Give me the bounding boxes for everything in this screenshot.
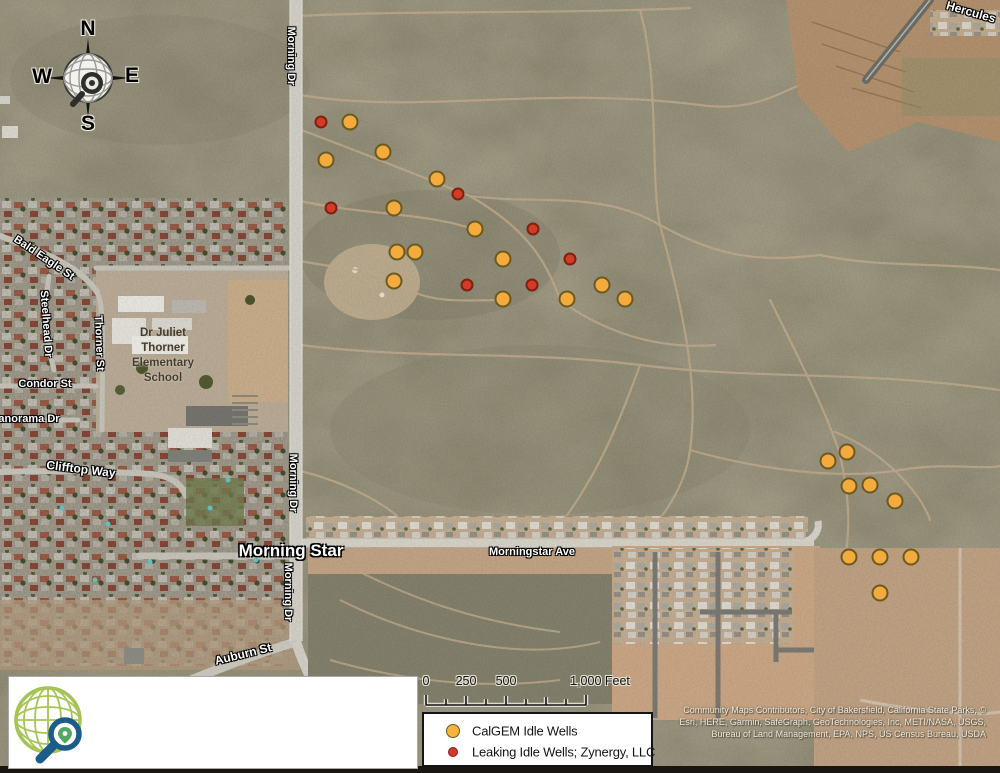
attribution-line: Community Maps Contributors, City of Bak… — [679, 704, 986, 716]
legend-item-leaking-wells: Leaking Idle Wells; Zynergy, LLC — [424, 741, 651, 763]
well-marker-idle — [872, 585, 889, 602]
well-marker-idle — [318, 152, 335, 169]
well-marker-idle — [903, 549, 920, 566]
well-marker-idle — [839, 444, 856, 461]
well-marker-idle — [617, 291, 634, 308]
legend-label: Leaking Idle Wells; Zynergy, LLC — [472, 745, 655, 760]
well-marker-idle — [386, 273, 403, 290]
well-marker-idle — [467, 221, 484, 238]
well-marker-idle — [386, 200, 403, 217]
well-marker-leaking — [452, 188, 465, 201]
legend-label: CalGEM Idle Wells — [472, 724, 577, 739]
well-marker-idle — [495, 251, 512, 268]
well-marker-idle — [862, 477, 879, 494]
well-marker-idle — [407, 244, 424, 261]
well-marker-idle — [375, 144, 392, 161]
well-marker-leaking — [564, 253, 577, 266]
attribution-line: Bureau of Land Management, EPA, NPS, US … — [679, 728, 986, 740]
scale-label-250: 250 — [456, 674, 477, 688]
scale-label-0: 0 — [423, 674, 430, 688]
scale-bar-graphic — [420, 691, 592, 707]
idle-well-symbol-icon — [446, 724, 460, 738]
well-marker-idle — [429, 171, 446, 188]
well-marker-leaking — [526, 279, 539, 292]
well-marker-leaking — [325, 202, 338, 215]
map-canvas: Morning DrHerculesBald Eagle StSteelhead… — [0, 0, 1000, 773]
well-marker-idle — [594, 277, 611, 294]
attribution-line: Esri, HERE, Garmin, SafeGraph, GeoTechno… — [679, 716, 986, 728]
scale-label-500: 500 — [496, 674, 517, 688]
well-marker-idle — [495, 291, 512, 308]
well-marker-idle — [389, 244, 406, 261]
leaking-well-symbol-icon — [448, 747, 458, 757]
well-marker-idle — [887, 493, 904, 510]
globe-magnifier-icon — [10, 682, 96, 768]
scale-bar: 0 250 500 1,000 Feet — [420, 674, 650, 710]
map-attribution: Community Maps Contributors, City of Bak… — [679, 704, 986, 740]
well-marker-idle — [820, 453, 837, 470]
well-markers — [0, 0, 1000, 773]
well-marker-leaking — [527, 223, 540, 236]
legend-item-idle-wells: CalGEM Idle Wells — [424, 720, 651, 742]
well-marker-idle — [872, 549, 889, 566]
well-marker-idle — [342, 114, 359, 131]
legend: CalGEM Idle Wells Leaking Idle Wells; Zy… — [422, 712, 653, 767]
well-marker-leaking — [315, 116, 328, 129]
well-marker-idle — [841, 549, 858, 566]
well-marker-idle — [841, 478, 858, 495]
well-marker-idle — [559, 291, 576, 308]
scale-label-1000: 1,000 Feet — [570, 674, 630, 688]
well-marker-leaking — [461, 279, 474, 292]
